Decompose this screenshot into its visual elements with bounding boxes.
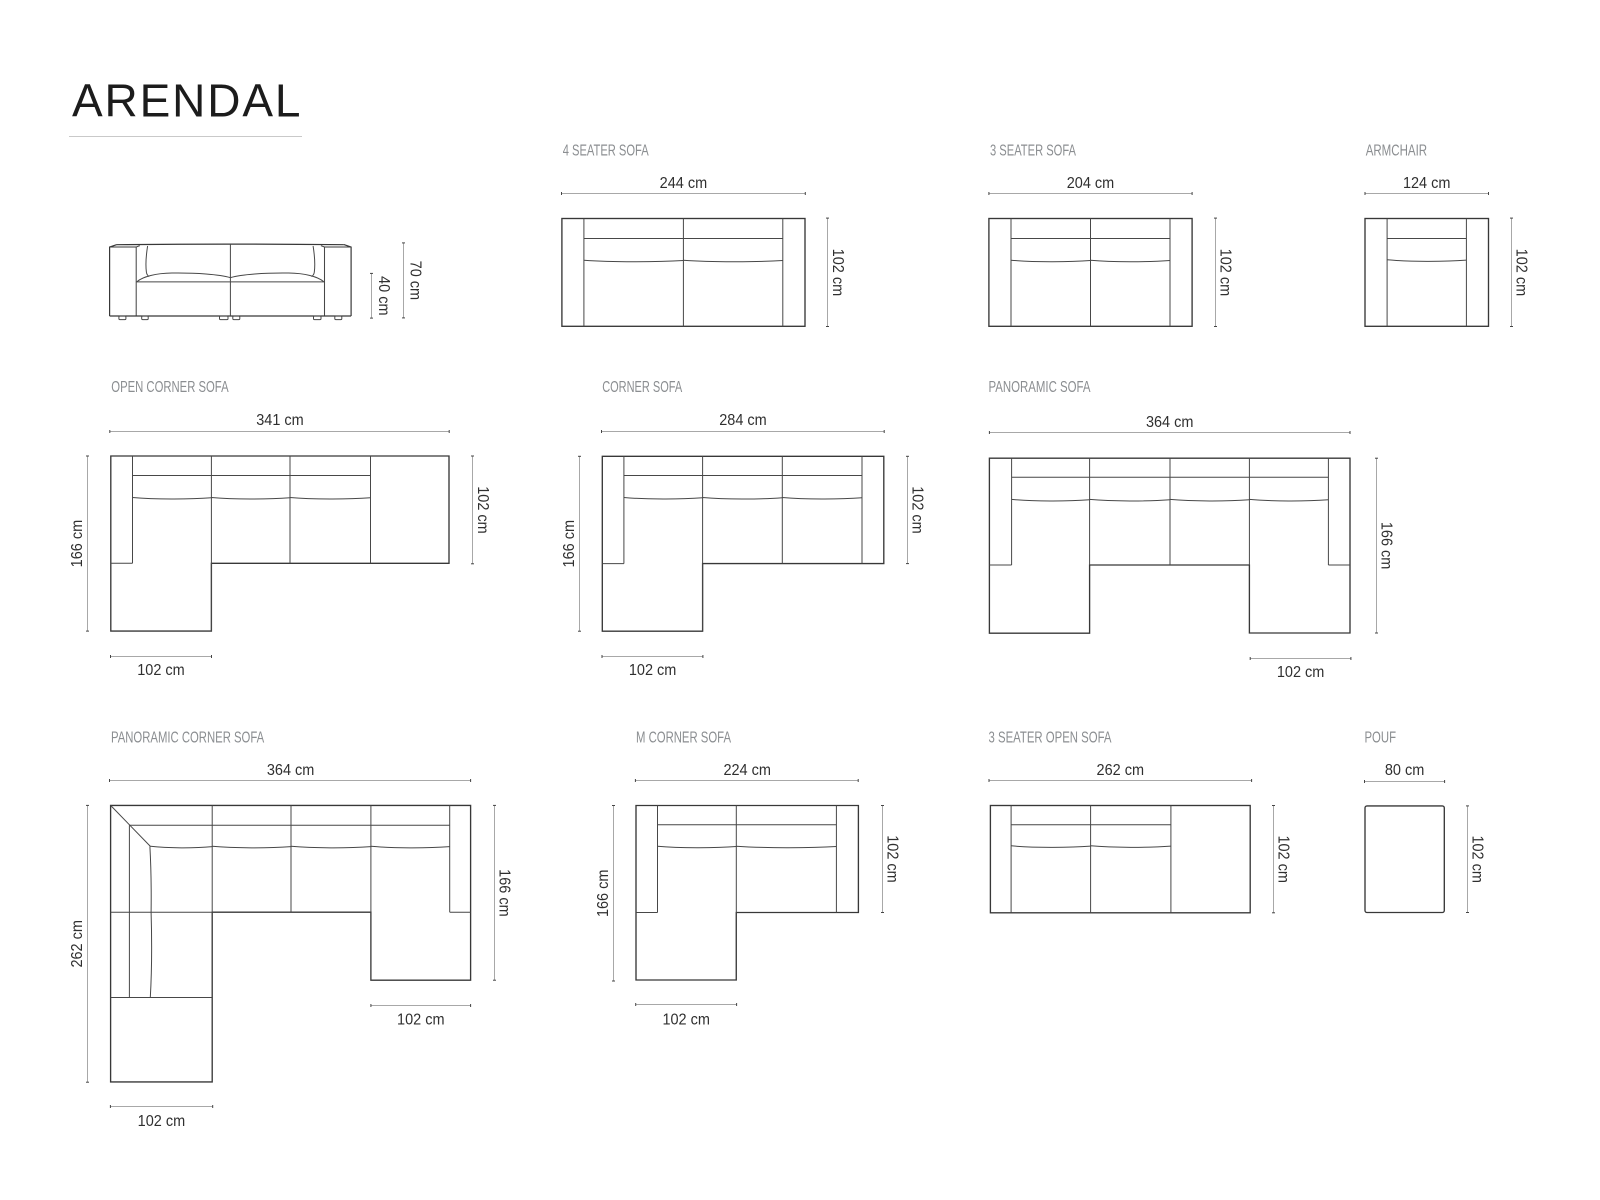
svg-text:102 cm: 102 cm	[1217, 249, 1234, 297]
svg-text:70 cm: 70 cm	[407, 261, 424, 301]
svg-text:CORNER SOFA: CORNER SOFA	[602, 379, 683, 396]
svg-text:102 cm: 102 cm	[829, 249, 846, 297]
svg-text:102 cm: 102 cm	[138, 1113, 186, 1130]
svg-text:341 cm: 341 cm	[256, 412, 304, 429]
svg-text:M CORNER SOFA: M CORNER SOFA	[636, 730, 732, 747]
svg-text:364 cm: 364 cm	[267, 762, 315, 779]
svg-text:PANORAMIC SOFA: PANORAMIC SOFA	[989, 379, 1092, 396]
svg-text:364 cm: 364 cm	[1146, 414, 1194, 431]
svg-text:102 cm: 102 cm	[884, 835, 901, 883]
svg-text:262 cm: 262 cm	[69, 920, 86, 968]
svg-text:ARMCHAIR: ARMCHAIR	[1366, 142, 1427, 159]
svg-text:166 cm: 166 cm	[69, 520, 86, 568]
svg-text:102 cm: 102 cm	[909, 486, 926, 534]
svg-text:102 cm: 102 cm	[629, 662, 677, 679]
svg-text:166 cm: 166 cm	[561, 520, 578, 568]
svg-text:204 cm: 204 cm	[1067, 175, 1115, 192]
svg-text:ARENDAL: ARENDAL	[72, 74, 301, 126]
svg-text:102 cm: 102 cm	[474, 486, 491, 534]
svg-text:PANORAMIC CORNER SOFA: PANORAMIC CORNER SOFA	[111, 730, 265, 747]
svg-text:166 cm: 166 cm	[1378, 522, 1395, 570]
svg-text:102 cm: 102 cm	[662, 1012, 710, 1029]
svg-text:POUF: POUF	[1365, 730, 1397, 747]
svg-text:166 cm: 166 cm	[496, 869, 513, 917]
svg-text:4 SEATER SOFA: 4 SEATER SOFA	[563, 142, 650, 159]
svg-text:284 cm: 284 cm	[719, 412, 767, 429]
svg-text:224 cm: 224 cm	[723, 762, 771, 779]
svg-text:102 cm: 102 cm	[1468, 835, 1485, 883]
svg-text:3 SEATER OPEN SOFA: 3 SEATER OPEN SOFA	[989, 730, 1113, 747]
svg-text:244 cm: 244 cm	[660, 175, 708, 192]
svg-text:3 SEATER SOFA: 3 SEATER SOFA	[990, 142, 1077, 159]
svg-text:124 cm: 124 cm	[1403, 175, 1451, 192]
svg-text:262 cm: 262 cm	[1097, 762, 1145, 779]
svg-text:166 cm: 166 cm	[595, 870, 612, 918]
svg-text:102 cm: 102 cm	[397, 1012, 445, 1029]
svg-text:80 cm: 80 cm	[1385, 762, 1425, 779]
svg-text:102 cm: 102 cm	[1513, 249, 1530, 297]
svg-text:102 cm: 102 cm	[1275, 835, 1292, 883]
svg-text:102 cm: 102 cm	[137, 662, 185, 679]
svg-text:OPEN CORNER SOFA: OPEN CORNER SOFA	[111, 379, 229, 396]
svg-text:102 cm: 102 cm	[1277, 664, 1325, 681]
svg-text:40 cm: 40 cm	[375, 276, 392, 316]
